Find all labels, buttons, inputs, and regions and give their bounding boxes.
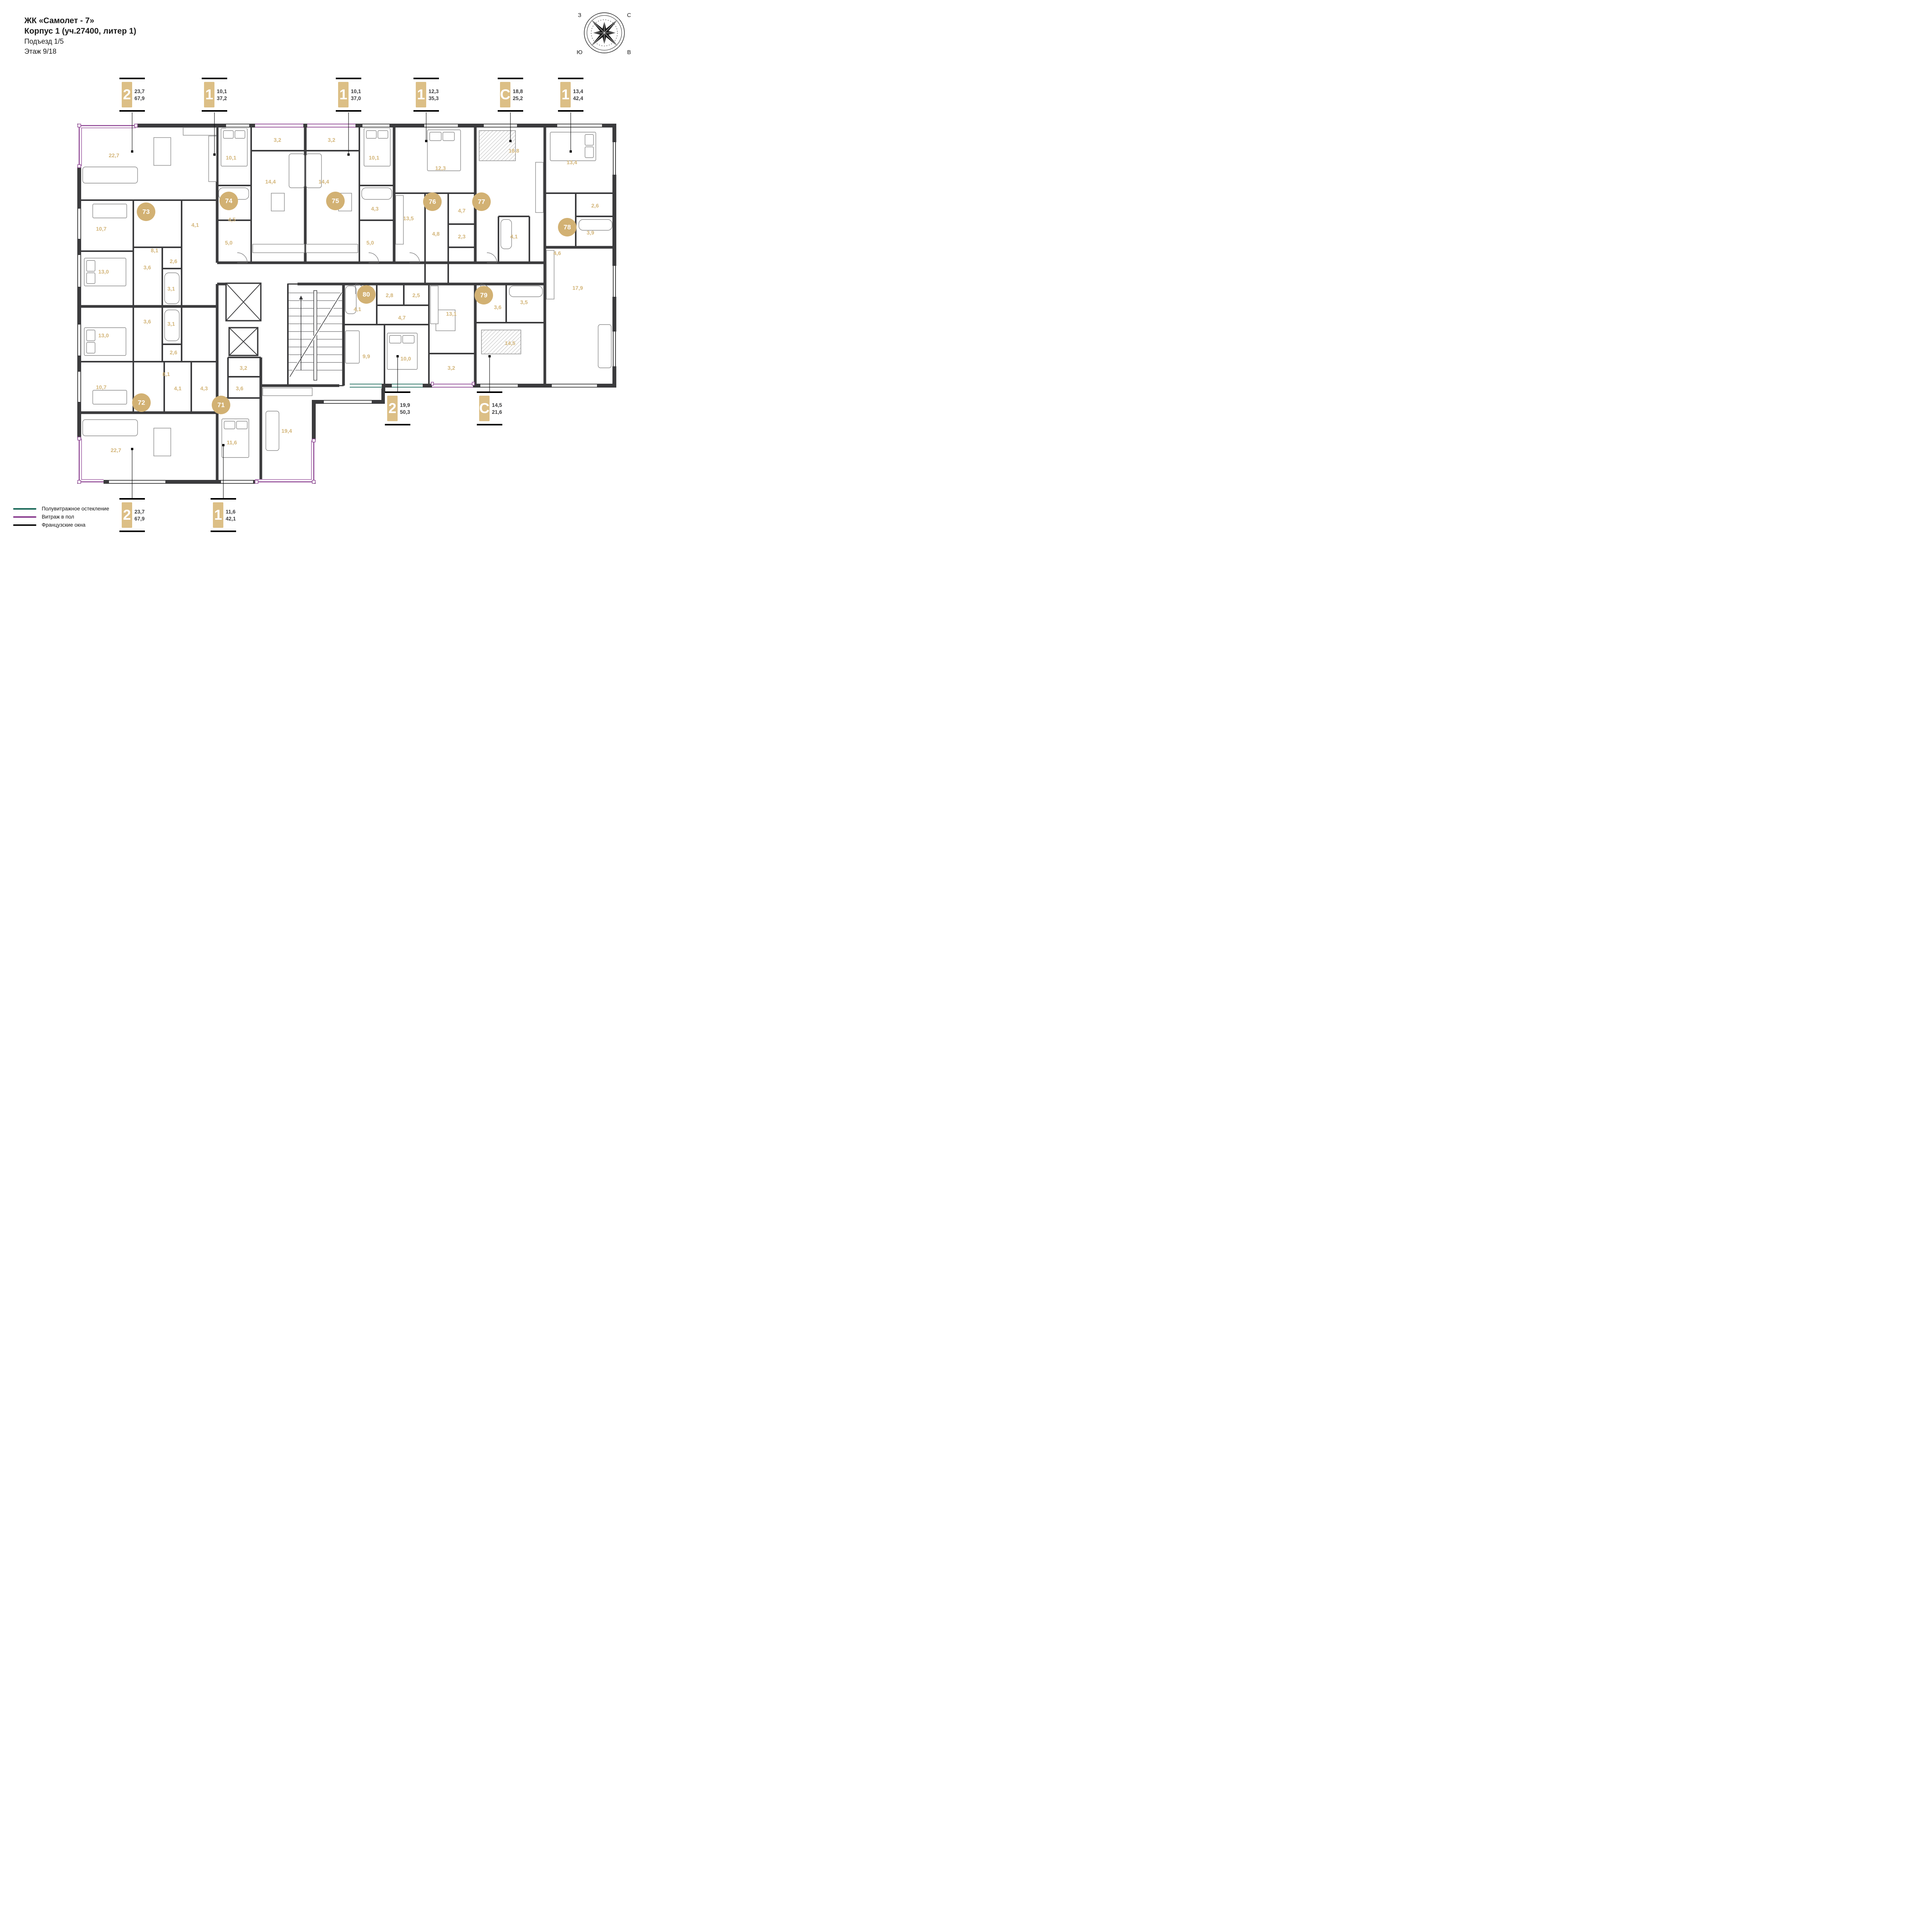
badge-areas: 19,950,3 <box>400 393 410 424</box>
room-area-label: 4,1 <box>510 233 518 240</box>
badge-room-count: 1 <box>560 82 571 107</box>
room-area-label: 4,1 <box>354 306 361 312</box>
room-area-label: 17,9 <box>572 285 583 291</box>
bathtub-icon <box>579 219 612 230</box>
room-area-label: 22,7 <box>111 447 121 453</box>
badge-area-total: 42,4 <box>573 95 583 101</box>
room-area-label: 10,7 <box>96 384 106 390</box>
badge-room-count: 2 <box>122 502 132 528</box>
legend-line-swatch <box>13 508 36 510</box>
apartment-type-badge: С18,825,2 <box>498 78 523 112</box>
badge-area-total: 50,3 <box>400 409 410 415</box>
badge-area-living: 18,8 <box>513 88 523 94</box>
badge-area-total: 25,2 <box>513 95 523 101</box>
room-area-label: 2,6 <box>170 349 177 355</box>
leader-dot <box>570 150 572 153</box>
room-area-label: 13,4 <box>566 159 577 165</box>
table-icon <box>154 428 171 456</box>
kitchen-counter <box>253 244 304 253</box>
badge-area-living: 10,1 <box>351 88 361 94</box>
room-area-label: 5,0 <box>225 240 233 246</box>
apartment-type-badge: 111,642,1 <box>211 498 236 532</box>
badge-areas: 12,335,3 <box>429 79 439 110</box>
room-area-label: 14,4 <box>318 179 329 185</box>
apartment-type-badge: С14,521,6 <box>477 391 502 425</box>
badge-room-count: С <box>479 396 490 421</box>
leader-dot <box>347 153 350 156</box>
room-area-label: 3,2 <box>240 365 247 371</box>
bed-icon <box>550 132 596 161</box>
sofa-icon <box>266 411 279 451</box>
room-area-label: 8,1 <box>162 371 170 377</box>
apartment-type-badge: 112,335,3 <box>413 78 439 112</box>
room-area-label: 22,7 <box>109 152 119 158</box>
badge-area-living: 12,3 <box>429 88 439 94</box>
room-area-label: 19,4 <box>281 428 292 434</box>
compass-east-label: В <box>627 49 631 56</box>
single-bed-icon <box>93 390 127 404</box>
floorplan-page: З С Ю В 22,78,14,110,713,03,62,63,13,210… <box>0 0 631 539</box>
plan-title-block: ЖК «Самолет - 7» Корпус 1 (уч.27400, лит… <box>24 15 136 56</box>
badge-room-count: 1 <box>204 82 214 107</box>
room-area-label: 9,9 <box>362 353 370 359</box>
apartment-number: 71 <box>218 401 225 409</box>
sofa-icon <box>83 167 138 183</box>
legend-row: Полувитражное остекление <box>13 505 109 513</box>
badge-areas: 10,137,2 <box>217 79 227 110</box>
leader-dot <box>396 355 399 357</box>
legend-label: Полувитражное остекление <box>42 506 109 512</box>
room-area-label: 3,5 <box>520 299 528 305</box>
badge-room-count: 1 <box>213 502 223 528</box>
apartment-number: 72 <box>138 399 145 406</box>
room-area-label: 14,4 <box>265 179 276 185</box>
badge-area-living: 10,1 <box>217 88 227 94</box>
complex-name: ЖК «Самолет - 7» <box>24 15 136 26</box>
room-area-label: 10,1 <box>369 155 379 161</box>
legend-line-swatch <box>13 524 36 526</box>
badge-areas: 13,442,4 <box>573 79 583 110</box>
room-area-label: 2,6 <box>170 258 177 264</box>
room-area-label: 8,1 <box>151 247 158 253</box>
apartment-number: 76 <box>429 198 436 206</box>
room-area-label: 3,2 <box>274 137 281 143</box>
sofa-icon <box>83 420 138 436</box>
room-area-label: 10,7 <box>96 226 106 232</box>
apartment-type-badge: 223,767,9 <box>119 78 145 112</box>
room-area-label: 4,5 <box>228 216 236 223</box>
room-area-label: 14,5 <box>505 340 515 346</box>
bed-icon <box>387 333 417 369</box>
apartment-number: 74 <box>225 197 233 205</box>
apartment-type-badge: 223,767,9 <box>119 498 145 532</box>
kitchen-counter <box>546 250 554 299</box>
room-area-label: 3,1 <box>167 286 175 292</box>
kitchen-counter <box>306 244 358 253</box>
kitchen-counter <box>536 162 543 213</box>
sofa-icon <box>289 154 304 188</box>
leader-dot <box>509 140 512 142</box>
badge-area-living: 11,6 <box>226 509 236 515</box>
room-area-label: 4,3 <box>371 206 379 212</box>
compass-south-label: Ю <box>577 49 582 56</box>
legend-row: Витраж в пол <box>13 513 109 521</box>
table-icon <box>154 138 171 165</box>
building-name: Корпус 1 (уч.27400, литер 1) <box>24 26 136 36</box>
entrance-info: Подъезд 1/5 <box>24 36 136 46</box>
badge-area-living: 14,5 <box>492 402 502 408</box>
room-area-label: 13,0 <box>98 332 109 338</box>
badge-area-living: 19,9 <box>400 402 410 408</box>
kitchen-counter <box>396 196 403 244</box>
leader-dot <box>131 150 133 153</box>
leader-dot <box>425 140 427 142</box>
room-area-label: 4,8 <box>432 231 440 237</box>
legend-line-swatch <box>13 516 36 518</box>
badge-areas: 11,642,1 <box>226 500 236 531</box>
badge-area-total: 37,2 <box>217 95 227 101</box>
apartment-type-badge: 219,950,3 <box>385 391 410 425</box>
badge-room-count: 1 <box>416 82 426 107</box>
compass-west-label: З <box>578 12 581 19</box>
bathtub-icon <box>509 286 543 297</box>
room-area-label: 4,1 <box>174 385 182 391</box>
room-area-label: 3,9 <box>587 230 594 236</box>
room-area-label: 10,1 <box>226 155 236 161</box>
table-icon <box>271 193 284 211</box>
badge-room-count: 1 <box>338 82 349 107</box>
badge-areas: 18,825,2 <box>513 79 523 110</box>
badge-area-living: 13,4 <box>573 88 583 94</box>
sofa-icon <box>598 325 611 368</box>
legend: Полувитражное остеклениеВитраж в полФран… <box>13 505 109 529</box>
apartment-number: 78 <box>564 224 571 231</box>
sofa-bed-icon <box>479 131 515 161</box>
badge-area-living: 23,7 <box>134 88 145 94</box>
leader-dot <box>213 153 216 156</box>
room-area-label: 3,6 <box>494 304 502 310</box>
elevator-shafts <box>226 283 261 355</box>
floorplan-drawing: З С Ю В 22,78,14,110,713,03,62,63,13,210… <box>0 0 631 539</box>
room-area-label: 3,6 <box>143 264 151 270</box>
room-area-label: 2,8 <box>386 292 393 298</box>
room-area-label: 3,2 <box>447 365 455 371</box>
kitchen-counter <box>263 388 312 396</box>
badge-areas: 14,521,6 <box>492 393 502 424</box>
room-area-label: 2,3 <box>458 233 466 240</box>
room-area-label: 13,5 <box>403 215 413 221</box>
legend-label: Французские окна <box>42 522 85 528</box>
room-area-label: 5,0 <box>366 240 374 246</box>
badge-area-total: 37,0 <box>351 95 361 101</box>
apartment-number: 77 <box>478 198 485 206</box>
badge-room-count: С <box>500 82 510 107</box>
badge-area-total: 21,6 <box>492 409 502 415</box>
bed-icon <box>222 419 249 457</box>
legend-label: Витраж в пол <box>42 514 74 520</box>
room-area-label: 10,0 <box>400 355 411 362</box>
badge-area-total: 67,9 <box>134 516 145 522</box>
leader-dot <box>131 448 133 450</box>
room-area-label: 3,6 <box>236 385 243 391</box>
single-bed-icon <box>345 331 359 363</box>
room-area-label: 4,7 <box>398 315 406 321</box>
kitchen-counter <box>430 286 438 324</box>
floor-info: Этаж 9/18 <box>24 46 136 56</box>
room-area-label: 11,6 <box>227 439 237 446</box>
bathtub-icon <box>362 188 392 199</box>
room-area-label: 2,5 <box>412 292 420 298</box>
single-bed-icon <box>93 204 127 218</box>
room-area-label: 4,6 <box>553 250 561 256</box>
badge-area-total: 35,3 <box>429 95 439 101</box>
badge-area-total: 67,9 <box>134 95 145 101</box>
apartment-number: 75 <box>332 197 339 205</box>
apartment-number: 80 <box>363 291 370 298</box>
apartment-number: 79 <box>480 292 488 299</box>
badge-areas: 10,137,0 <box>351 79 361 110</box>
apartment-type-badge: 113,442,4 <box>558 78 583 112</box>
leader-dot <box>222 444 224 446</box>
apartment-type-badge: 110,137,2 <box>202 78 227 112</box>
room-area-label: 13,1 <box>446 311 456 317</box>
room-area-label: 18,8 <box>509 148 519 154</box>
bed-icon <box>84 328 126 355</box>
room-area-label: 2,6 <box>591 202 599 209</box>
badge-areas: 23,767,9 <box>134 79 145 110</box>
compass-rose: З С Ю В <box>577 12 631 56</box>
badge-areas: 23,767,9 <box>134 500 145 531</box>
badge-area-total: 42,1 <box>226 516 236 522</box>
room-area-label: 12,3 <box>435 165 446 171</box>
badge-room-count: 2 <box>122 82 132 107</box>
compass-north-label: С <box>627 12 631 19</box>
room-area-label: 4,3 <box>200 385 208 391</box>
room-area-label: 3,1 <box>167 321 175 327</box>
apartment-type-badge: 110,137,0 <box>336 78 361 112</box>
room-area-label: 3,2 <box>328 137 335 143</box>
room-area-label: 4,7 <box>458 207 466 214</box>
leader-dot <box>488 355 491 357</box>
room-area-label: 13,0 <box>98 269 109 275</box>
badge-area-living: 23,7 <box>134 509 145 515</box>
apartment-number: 73 <box>143 208 150 216</box>
room-area-label: 3,6 <box>143 318 151 325</box>
room-area-label: 4,1 <box>191 222 199 228</box>
badge-room-count: 2 <box>387 396 398 421</box>
legend-row: Французские окна <box>13 521 109 529</box>
